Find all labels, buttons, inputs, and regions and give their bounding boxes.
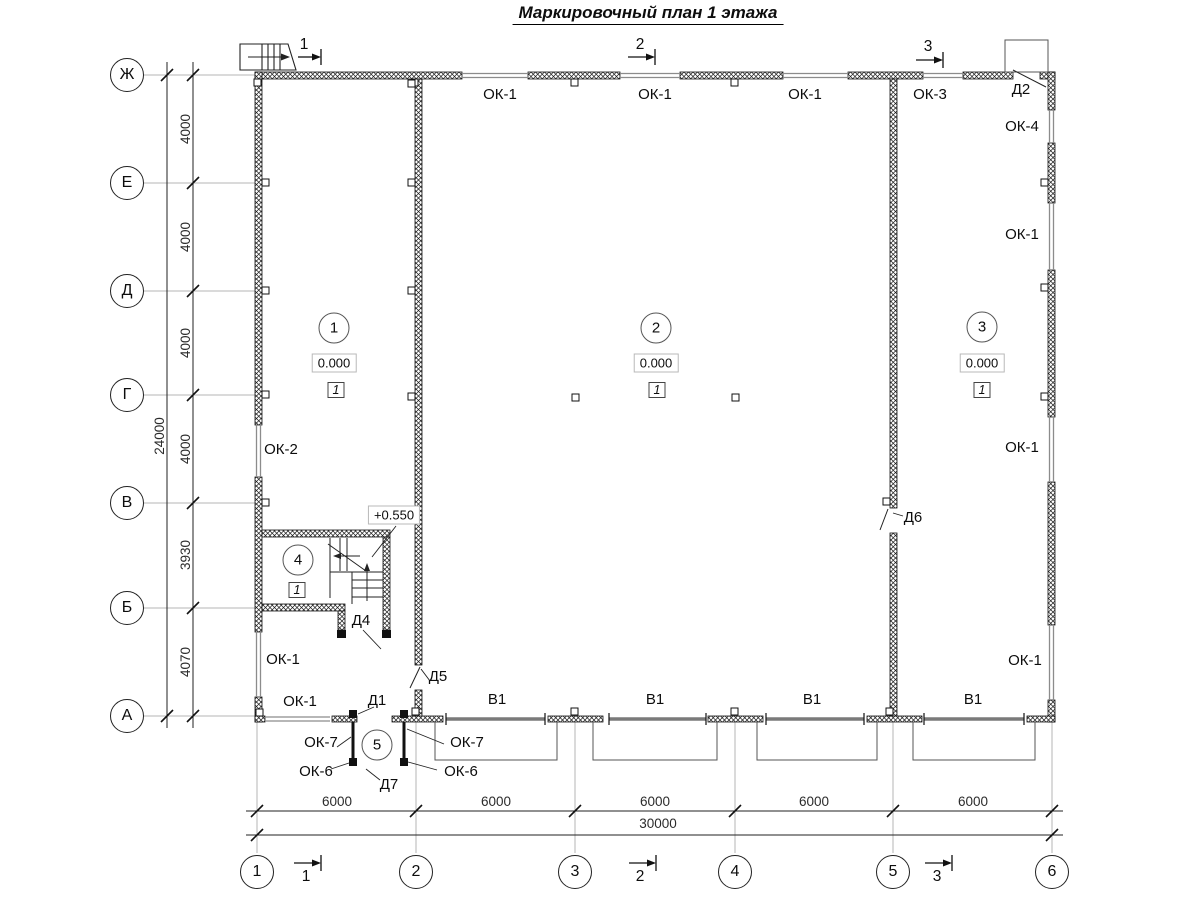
dimension-label: 6000: [640, 794, 670, 810]
opening-mark: ОК-7: [304, 735, 338, 751]
section-mark-label: 2: [636, 37, 645, 53]
axis-col-label: 6: [1048, 863, 1057, 881]
opening-mark: Д6: [904, 510, 923, 526]
dimension-label: 4000: [178, 328, 194, 358]
opening-mark: ОК-1: [1005, 440, 1039, 456]
axis-col-label: 4: [731, 863, 740, 881]
opening-mark: ОК-1: [1008, 653, 1042, 669]
opening-mark: ОК-1: [638, 87, 672, 103]
opening-mark: Д4: [352, 613, 371, 629]
axis-row-label: Д: [122, 282, 133, 300]
axis-row-bubble: А: [110, 699, 144, 733]
room-number: 2: [652, 320, 660, 337]
room-number-bubble: 1: [319, 313, 350, 344]
opening-mark: ОК-1: [1005, 227, 1039, 243]
axis-row-label: Б: [122, 599, 133, 617]
opening-mark: В1: [803, 692, 821, 708]
room-number-bubble: 5: [362, 730, 393, 761]
axis-col-bubble: 5: [876, 855, 910, 889]
opening-mark: ОК-6: [444, 764, 478, 780]
section-mark-label: 3: [933, 869, 942, 885]
axis-col-label: 1: [253, 863, 262, 881]
opening-mark: ОК-1: [266, 652, 300, 668]
axis-row-label: А: [122, 707, 133, 725]
room-elevation: 0.000: [634, 354, 679, 373]
dimension-label: 4000: [178, 114, 194, 144]
axis-col-bubble: 4: [718, 855, 752, 889]
dimension-label: 4000: [178, 222, 194, 252]
floor-type-mark: 1: [289, 582, 306, 598]
room-number: 4: [294, 552, 302, 569]
total-dimension-label: 24000: [152, 417, 168, 455]
axis-row-label: Г: [123, 386, 132, 404]
opening-mark: В1: [646, 692, 664, 708]
opening-mark: ОК-1: [483, 87, 517, 103]
opening-mark: ОК-1: [283, 694, 317, 710]
floor-plan-canvas: Маркировочный план 1 этажа ЖЕДГВБА123456…: [0, 0, 1200, 900]
axis-col-bubble: 1: [240, 855, 274, 889]
opening-mark: ОК-7: [450, 735, 484, 751]
opening-mark: Д7: [380, 777, 399, 793]
dimension-label: 6000: [958, 794, 988, 810]
room-number-bubble: 2: [641, 313, 672, 344]
opening-mark: В1: [488, 692, 506, 708]
opening-mark: Д1: [368, 693, 387, 709]
dimension-label: 4070: [178, 647, 194, 677]
axis-row-label: Е: [122, 174, 133, 192]
section-mark-label: 1: [302, 869, 311, 885]
room-number: 3: [978, 319, 986, 336]
axis-col-label: 2: [412, 863, 421, 881]
axis-row-label: В: [122, 494, 133, 512]
section-mark-label: 2: [636, 869, 645, 885]
axis-row-bubble: Г: [110, 378, 144, 412]
section-mark-label: 3: [924, 39, 933, 55]
labels-layer: ЖЕДГВБА123456400040004000400039304070240…: [0, 0, 1200, 900]
axis-row-bubble: В: [110, 486, 144, 520]
dimension-label: 6000: [799, 794, 829, 810]
dimension-label: 6000: [322, 794, 352, 810]
room-elevation: 0.000: [960, 354, 1005, 373]
axis-col-label: 5: [889, 863, 898, 881]
dimension-label: 4000: [178, 434, 194, 464]
axis-col-label: 3: [571, 863, 580, 881]
opening-mark: В1: [964, 692, 982, 708]
floor-type-mark: 1: [328, 382, 345, 398]
floor-type-mark: 1: [974, 382, 991, 398]
opening-mark: ОК-2: [264, 442, 298, 458]
axis-col-bubble: 6: [1035, 855, 1069, 889]
axis-row-bubble: Д: [110, 274, 144, 308]
room-number: 1: [330, 320, 338, 337]
section-mark-label: 1: [300, 37, 309, 53]
dimension-label: 3930: [178, 540, 194, 570]
opening-mark: ОК-4: [1005, 119, 1039, 135]
stair-landing-elevation: +0.550: [368, 506, 420, 525]
opening-mark: ОК-1: [788, 87, 822, 103]
opening-mark: ОК-3: [913, 87, 947, 103]
axis-row-bubble: Е: [110, 166, 144, 200]
axis-col-bubble: 2: [399, 855, 433, 889]
axis-col-bubble: 3: [558, 855, 592, 889]
axis-row-bubble: Б: [110, 591, 144, 625]
total-dimension-label: 30000: [639, 816, 677, 832]
dimension-label: 6000: [481, 794, 511, 810]
room-number: 5: [373, 737, 381, 754]
room-number-bubble: 4: [283, 545, 314, 576]
room-elevation: 0.000: [312, 354, 357, 373]
opening-mark: Д2: [1012, 82, 1031, 98]
axis-row-bubble: Ж: [110, 58, 144, 92]
room-number-bubble: 3: [967, 312, 998, 343]
axis-row-label: Ж: [120, 66, 135, 84]
floor-type-mark: 1: [649, 382, 666, 398]
opening-mark: ОК-6: [299, 764, 333, 780]
opening-mark: Д5: [429, 669, 448, 685]
